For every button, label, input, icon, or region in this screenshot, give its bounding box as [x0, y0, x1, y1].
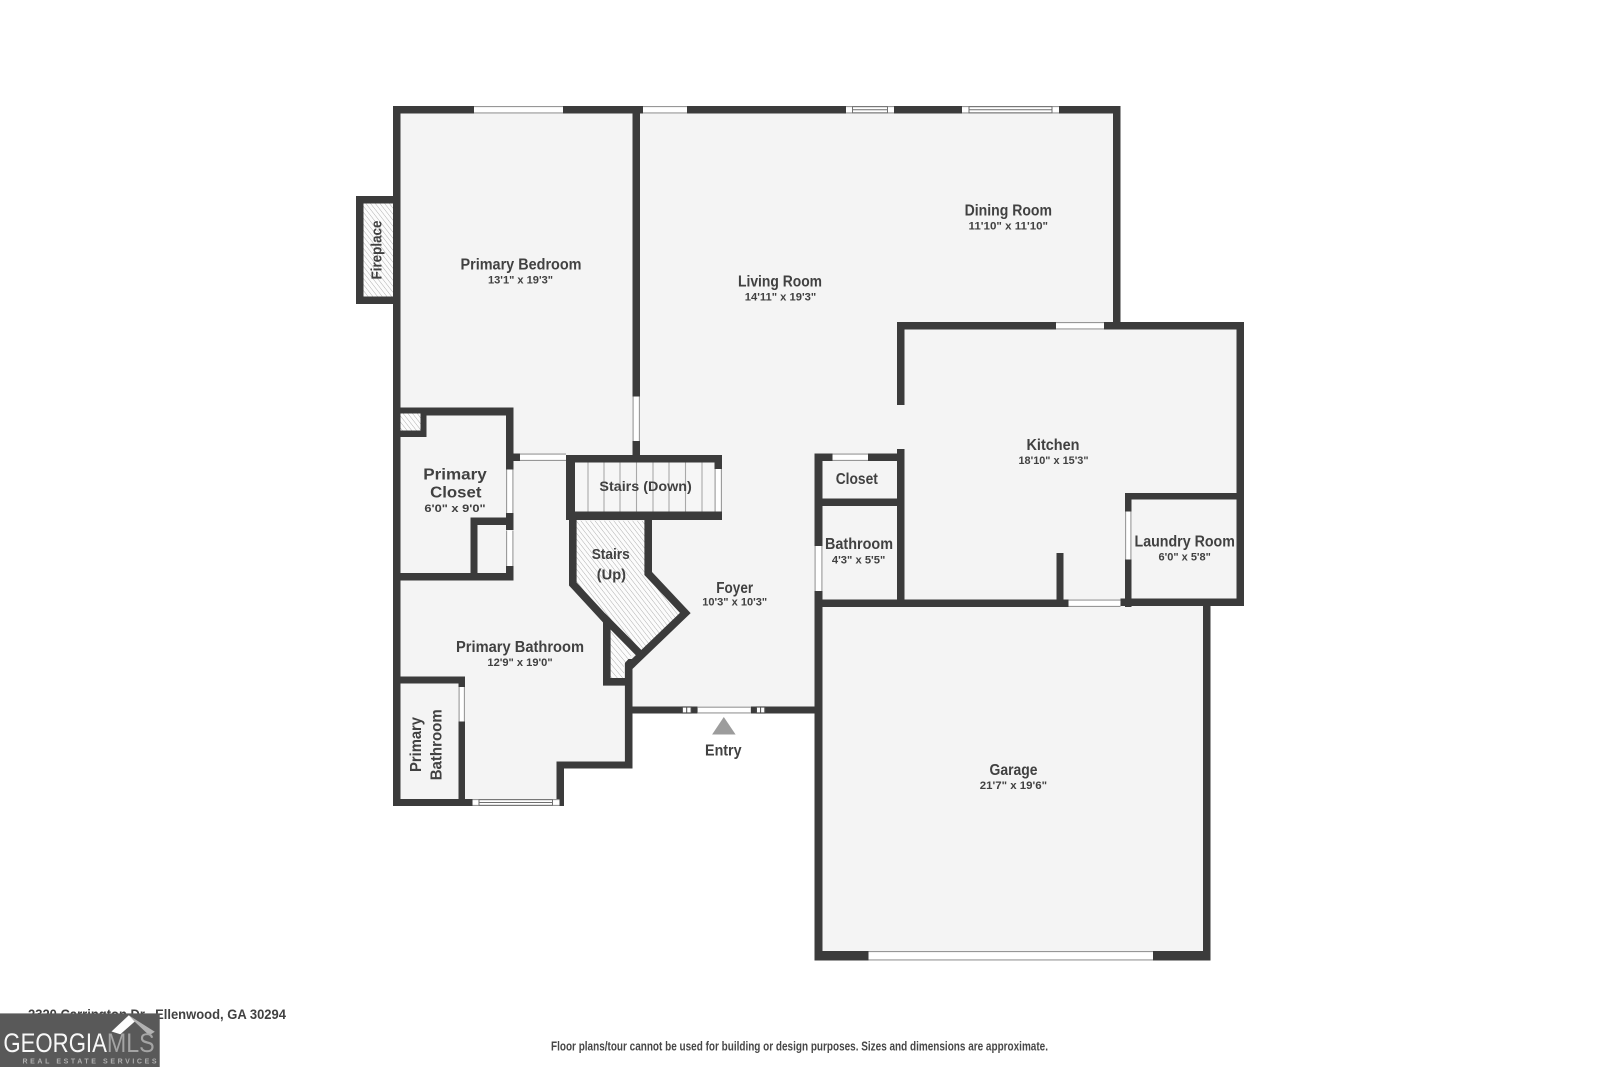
svg-text:Primary: Primary — [423, 467, 487, 484]
svg-text:Closet: Closet — [836, 471, 878, 488]
svg-text:Stairs: Stairs — [592, 547, 630, 563]
svg-text:Kitchen: Kitchen — [1027, 437, 1080, 454]
svg-text:Closet: Closet — [430, 484, 481, 501]
svg-text:GEORGIA: GEORGIA — [3, 1028, 107, 1058]
svg-text:(Up): (Up) — [597, 567, 626, 583]
svg-text:Stairs (Down): Stairs (Down) — [599, 478, 691, 494]
svg-text:Floor plans/tour cannot be use: Floor plans/tour cannot be used for buil… — [551, 1039, 1048, 1054]
svg-text:Dining Room: Dining Room — [965, 203, 1052, 220]
svg-text:Living Room: Living Room — [738, 273, 822, 290]
svg-text:11'10" x 11'10": 11'10" x 11'10" — [969, 221, 1049, 233]
svg-text:Primary Bedroom: Primary Bedroom — [461, 257, 582, 274]
svg-text:10'3" x 10'3": 10'3" x 10'3" — [702, 597, 767, 609]
svg-text:Primary Bathroom: Primary Bathroom — [456, 639, 584, 656]
svg-text:Garage: Garage — [990, 762, 1038, 779]
svg-text:Primary: Primary — [408, 717, 425, 772]
svg-text:Fireplace: Fireplace — [369, 221, 386, 280]
svg-text:4'3" x 5'5": 4'3" x 5'5" — [832, 555, 885, 567]
svg-text:6'0" x 5'8": 6'0" x 5'8" — [1159, 552, 1211, 564]
svg-text:12'9" x 19'0": 12'9" x 19'0" — [487, 657, 552, 669]
svg-text:Bathroom: Bathroom — [429, 709, 446, 780]
svg-text:Entry: Entry — [705, 743, 742, 760]
svg-text:6'0" x 9'0": 6'0" x 9'0" — [424, 503, 485, 515]
svg-text:14'11" x 19'3": 14'11" x 19'3" — [745, 292, 817, 304]
svg-text:13'1" x 19'3": 13'1" x 19'3" — [488, 275, 553, 287]
svg-text:21'7" x 19'6": 21'7" x 19'6" — [980, 780, 1047, 792]
svg-text:Foyer: Foyer — [716, 580, 753, 597]
svg-text:Laundry Room: Laundry Room — [1135, 534, 1235, 551]
svg-text:Bathroom: Bathroom — [825, 536, 893, 553]
svg-text:MLS: MLS — [107, 1028, 155, 1058]
svg-text:18'10" x 15'3": 18'10" x 15'3" — [1019, 455, 1089, 467]
